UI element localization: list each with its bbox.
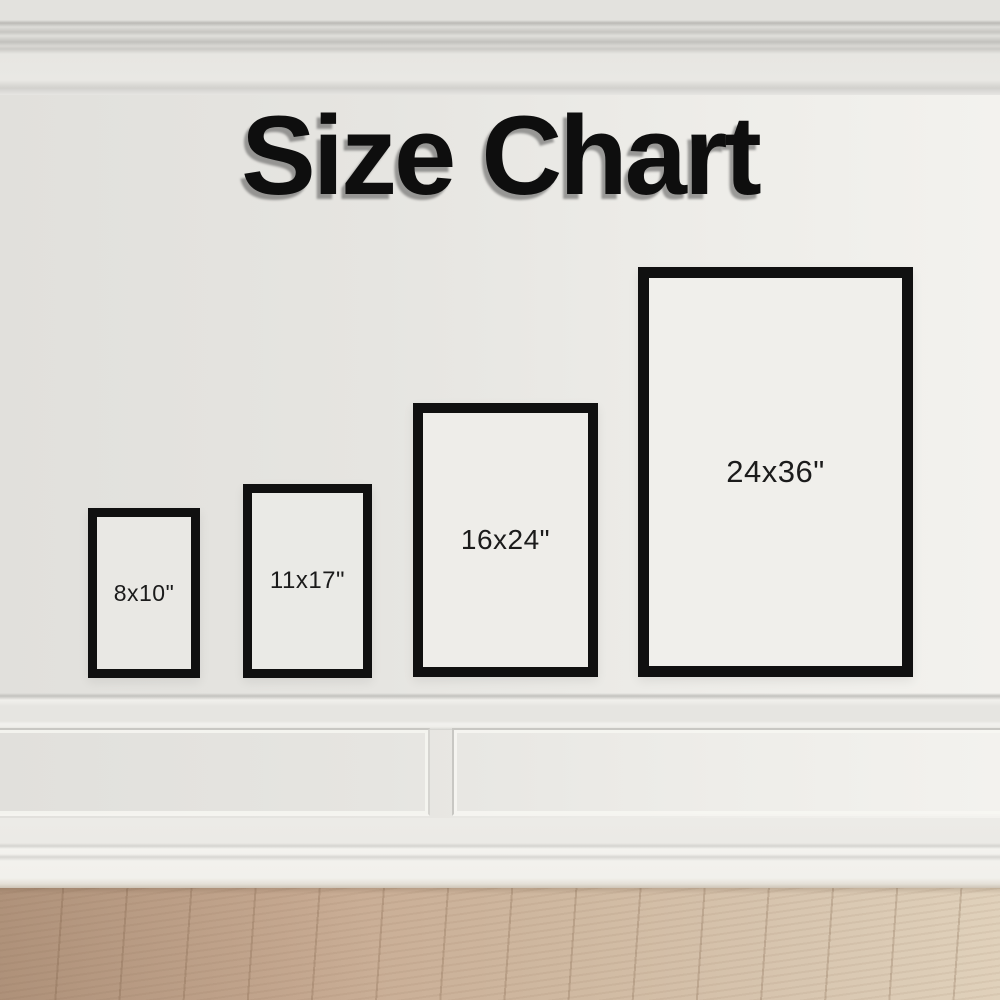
frame-24x36: 24x36" xyxy=(638,267,913,677)
size-chart-title: Size Chart xyxy=(0,100,1000,212)
wainscot-panel-right xyxy=(452,728,1000,816)
crown-molding xyxy=(0,0,1000,95)
frame-16x24: 16x24" xyxy=(413,403,598,677)
frame-8x10: 8x10" xyxy=(88,508,200,678)
frame-size-label: 16x24" xyxy=(461,524,550,556)
frame-size-label: 24x36" xyxy=(726,454,824,490)
wainscot-chair-rail xyxy=(0,690,1000,730)
frame-size-label: 11x17" xyxy=(270,567,345,595)
wainscot-panel-left xyxy=(0,728,430,816)
frame-11x17: 11x17" xyxy=(243,484,372,678)
size-chart-scene: Size Chart 8x10" 11x17" 16x24" 24x36" xyxy=(0,0,1000,1000)
baseboard xyxy=(0,818,1000,888)
wood-floor xyxy=(0,888,1000,1000)
frame-size-label: 8x10" xyxy=(114,580,175,607)
